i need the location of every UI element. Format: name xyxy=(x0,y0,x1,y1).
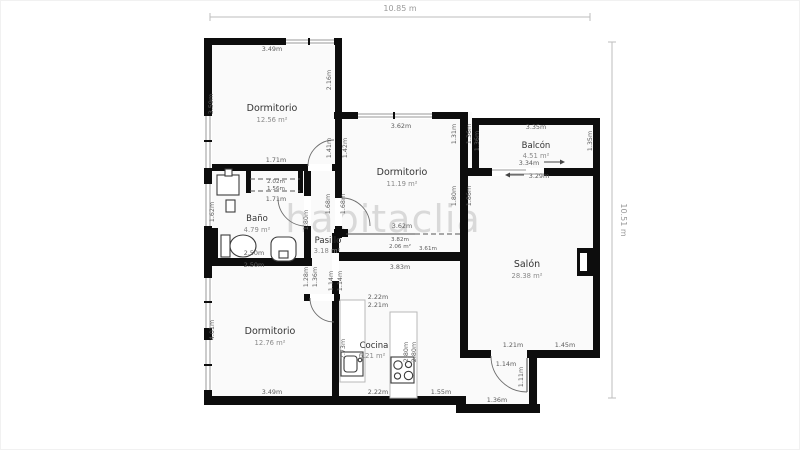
measurement-label: 2.16m xyxy=(325,70,333,90)
measurement-label: 1.80m xyxy=(302,210,310,230)
measurement-label: 2.50m xyxy=(244,249,264,257)
measurement-label: 1.28m xyxy=(302,267,310,287)
room-name: Pasillo xyxy=(315,236,342,246)
measurement-label: 1.21m xyxy=(503,341,523,349)
measurement-label: 2.80m xyxy=(402,342,410,362)
measurement-label: 1.36m xyxy=(465,124,473,144)
window-bedroom-bottom-leftwall-2 xyxy=(204,340,212,390)
measurement-label: 1.11m xyxy=(517,367,525,387)
measurement-label: 3.29m xyxy=(529,172,549,180)
room-name: Cocina xyxy=(360,341,389,351)
measurement-label: 1.14m xyxy=(336,271,344,291)
room-name: Dormitorio xyxy=(247,103,298,114)
measurement-label: 1.55m xyxy=(431,388,451,396)
measurement-label: 2.06 m² xyxy=(389,243,411,250)
room-area: 12.76 m² xyxy=(255,339,286,347)
measurement-label: 1.14m xyxy=(496,360,516,368)
measurement-label: 3.82m xyxy=(391,237,409,243)
room-label-kitchen: Cocina 6.21 m² xyxy=(359,341,389,360)
measurement-label: 1.36m xyxy=(473,131,481,151)
measurement-label: 1.80m xyxy=(450,186,458,206)
room-area: 4.79 m² xyxy=(244,226,271,234)
measurement-label: 1.42m xyxy=(341,138,349,158)
room-label-living: Salón 28.38 m² xyxy=(512,259,543,280)
measurement-label: 1.14m xyxy=(327,271,335,291)
measurement-label: 1.71m xyxy=(266,156,286,164)
measurement-label: 3.61m xyxy=(419,246,437,252)
measurement-label: 3.59m xyxy=(207,94,215,114)
measurement-label: 2.02m xyxy=(267,179,285,185)
measurement-label: 3.62m xyxy=(392,222,412,230)
measurement-label: 1.36m xyxy=(311,267,319,287)
room-name: Baño xyxy=(246,214,268,224)
measurement-label: 2.22m xyxy=(368,293,388,301)
room-label-balcony: Balcón 4.51 m² xyxy=(522,140,551,160)
room-area: 28.38 m² xyxy=(512,272,543,280)
measurement-label: 3.49m xyxy=(262,388,282,396)
room-area: 6.21 m² xyxy=(359,352,386,360)
floor-plan-page: 10.85 m 10.51 m habitaclia xyxy=(0,0,800,450)
measurement-label: 2.50m xyxy=(244,261,264,269)
dimension-top: 10.85 m xyxy=(210,4,590,21)
measurement-label: 1.36m xyxy=(487,396,507,404)
measurement-label: 1.56m xyxy=(267,186,285,192)
measurement-label: 1.35m xyxy=(586,131,594,151)
measurement-label: 1.68m xyxy=(339,194,347,214)
measurement-label: 2.22m xyxy=(368,388,388,396)
measurement-label: 1.68m xyxy=(324,194,332,214)
measurement-label: 3.83m xyxy=(390,263,410,271)
measurement-label: 1.62m xyxy=(208,202,216,222)
measurement-label: 4.01m xyxy=(208,320,216,340)
measurement-label: 2.21m xyxy=(368,301,388,309)
window-bedroom-top-leftwall xyxy=(204,116,212,168)
room-area: 12.56 m² xyxy=(257,116,288,124)
floor-plan-svg: 10.85 m 10.51 m habitaclia xyxy=(0,0,800,450)
measurement-label: 2.80m xyxy=(410,342,418,362)
measurement-label: 1.86m xyxy=(465,186,473,206)
living-wall-unit-icon xyxy=(577,248,593,276)
room-name: Salón xyxy=(514,259,540,270)
room-area: 3.18 m² xyxy=(314,247,341,255)
window-bedroom-top-topwall xyxy=(286,38,334,45)
measurement-label: 3.34m xyxy=(519,159,539,167)
room-area: 11.19 m² xyxy=(387,180,418,188)
bidet-icon xyxy=(271,237,296,261)
measurement-label: 1.71m xyxy=(266,195,286,203)
total-height-label: 10.51 m xyxy=(619,203,628,236)
measurement-label: 3.35m xyxy=(526,123,546,131)
measurement-label: 2.73m xyxy=(339,339,347,359)
measurement-label: 1.31m xyxy=(450,124,458,144)
dimension-right: 10.51 m xyxy=(608,42,628,398)
measurement-label: 1.41m xyxy=(325,138,333,158)
window-bedroom-mid-topwall xyxy=(358,112,432,119)
total-width-label: 10.85 m xyxy=(383,4,416,13)
room-name: Dormitorio xyxy=(377,167,428,178)
measurement-label: 3.62m xyxy=(391,122,411,130)
room-name: Balcón xyxy=(522,140,551,151)
measurement-label: 3.49m xyxy=(262,45,282,53)
room-name: Dormitorio xyxy=(245,326,296,337)
room-label-hallway: Pasillo 3.18 m² xyxy=(314,236,342,255)
measurement-label: 1.45m xyxy=(555,341,575,349)
